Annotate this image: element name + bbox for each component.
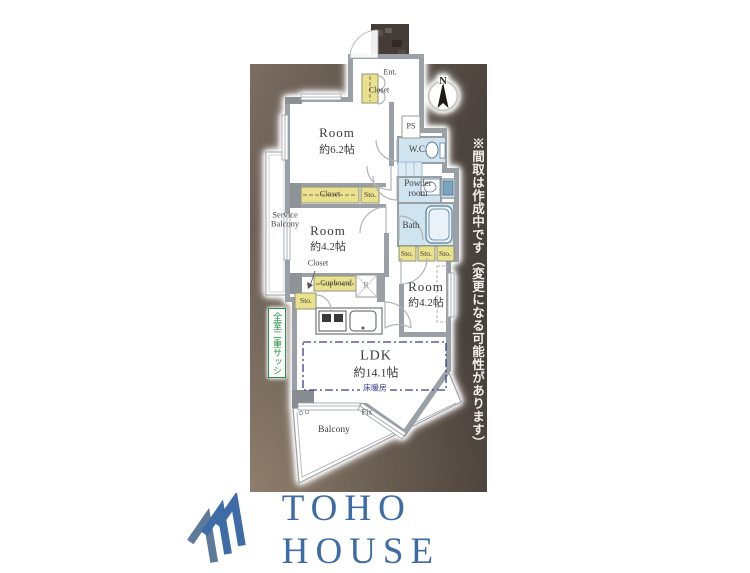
- powder-room-label: Powder room: [396, 179, 440, 199]
- floor-plan-svg: N: [0, 0, 750, 563]
- north-arrow-icon: N: [429, 75, 458, 111]
- entrance-door-arc: [350, 30, 378, 58]
- notice-vertical-text: ※間取は作成中です（変更になる可能性があります）: [468, 137, 487, 447]
- toilet-icon: [426, 142, 445, 158]
- toho-house-logo-icon: [188, 493, 267, 567]
- mid-sto-label: Sto.: [364, 191, 376, 199]
- balcony-label: Balcony: [318, 425, 350, 435]
- bedroom2-size: 約4.2帖: [310, 241, 346, 253]
- brand-logo: TOHO HOUSE: [188, 487, 563, 573]
- page: { "notice": { "text": "※間取は作成中です（変更になる可能…: [0, 0, 750, 563]
- brand-name: TOHO HOUSE: [282, 487, 563, 573]
- low-sto-label: Sto.: [300, 297, 312, 305]
- kitchen-sink-icon: [350, 311, 376, 331]
- bedroom1-size: 約6.2帖: [319, 144, 355, 156]
- sto-row-3: Sto.: [439, 250, 451, 258]
- kitchen-counter: [316, 308, 382, 334]
- entrance-label: Ent.: [383, 69, 396, 78]
- refrigerator-label: R: [363, 282, 368, 291]
- ldk-name: LDK: [360, 348, 392, 363]
- bath-label: Bath: [403, 221, 420, 231]
- low-closet-label: Closet: [308, 260, 328, 269]
- sto-row-2: Sto.: [420, 250, 432, 258]
- stove-icon: [319, 311, 346, 331]
- bedroom1-name: Room: [319, 126, 355, 140]
- ldk-size: 約14.1帖: [353, 366, 398, 379]
- service-balcony-label: Service Balcony: [262, 211, 308, 230]
- bedroom2-name: Room: [310, 224, 346, 238]
- bedroom3-name: Room: [408, 280, 444, 294]
- wc-label: W.C.: [409, 145, 427, 155]
- entrance-closet-label: Closet: [369, 87, 389, 96]
- floor-heating-label: 床暖房: [360, 385, 390, 394]
- mid-closet-label: Closet: [320, 191, 340, 200]
- fix-label: Fix: [362, 409, 373, 418]
- cupboard-label: Cupboard: [320, 280, 352, 289]
- bathtub-icon: [426, 206, 452, 243]
- bedroom3-size: 約4.2帖: [408, 297, 444, 309]
- double-sash-badge: 全室二重サッシ: [268, 308, 286, 378]
- ps-label: PS: [407, 123, 416, 132]
- sto-row-1: Sto.: [401, 250, 413, 258]
- compass-n-label: N: [439, 75, 447, 87]
